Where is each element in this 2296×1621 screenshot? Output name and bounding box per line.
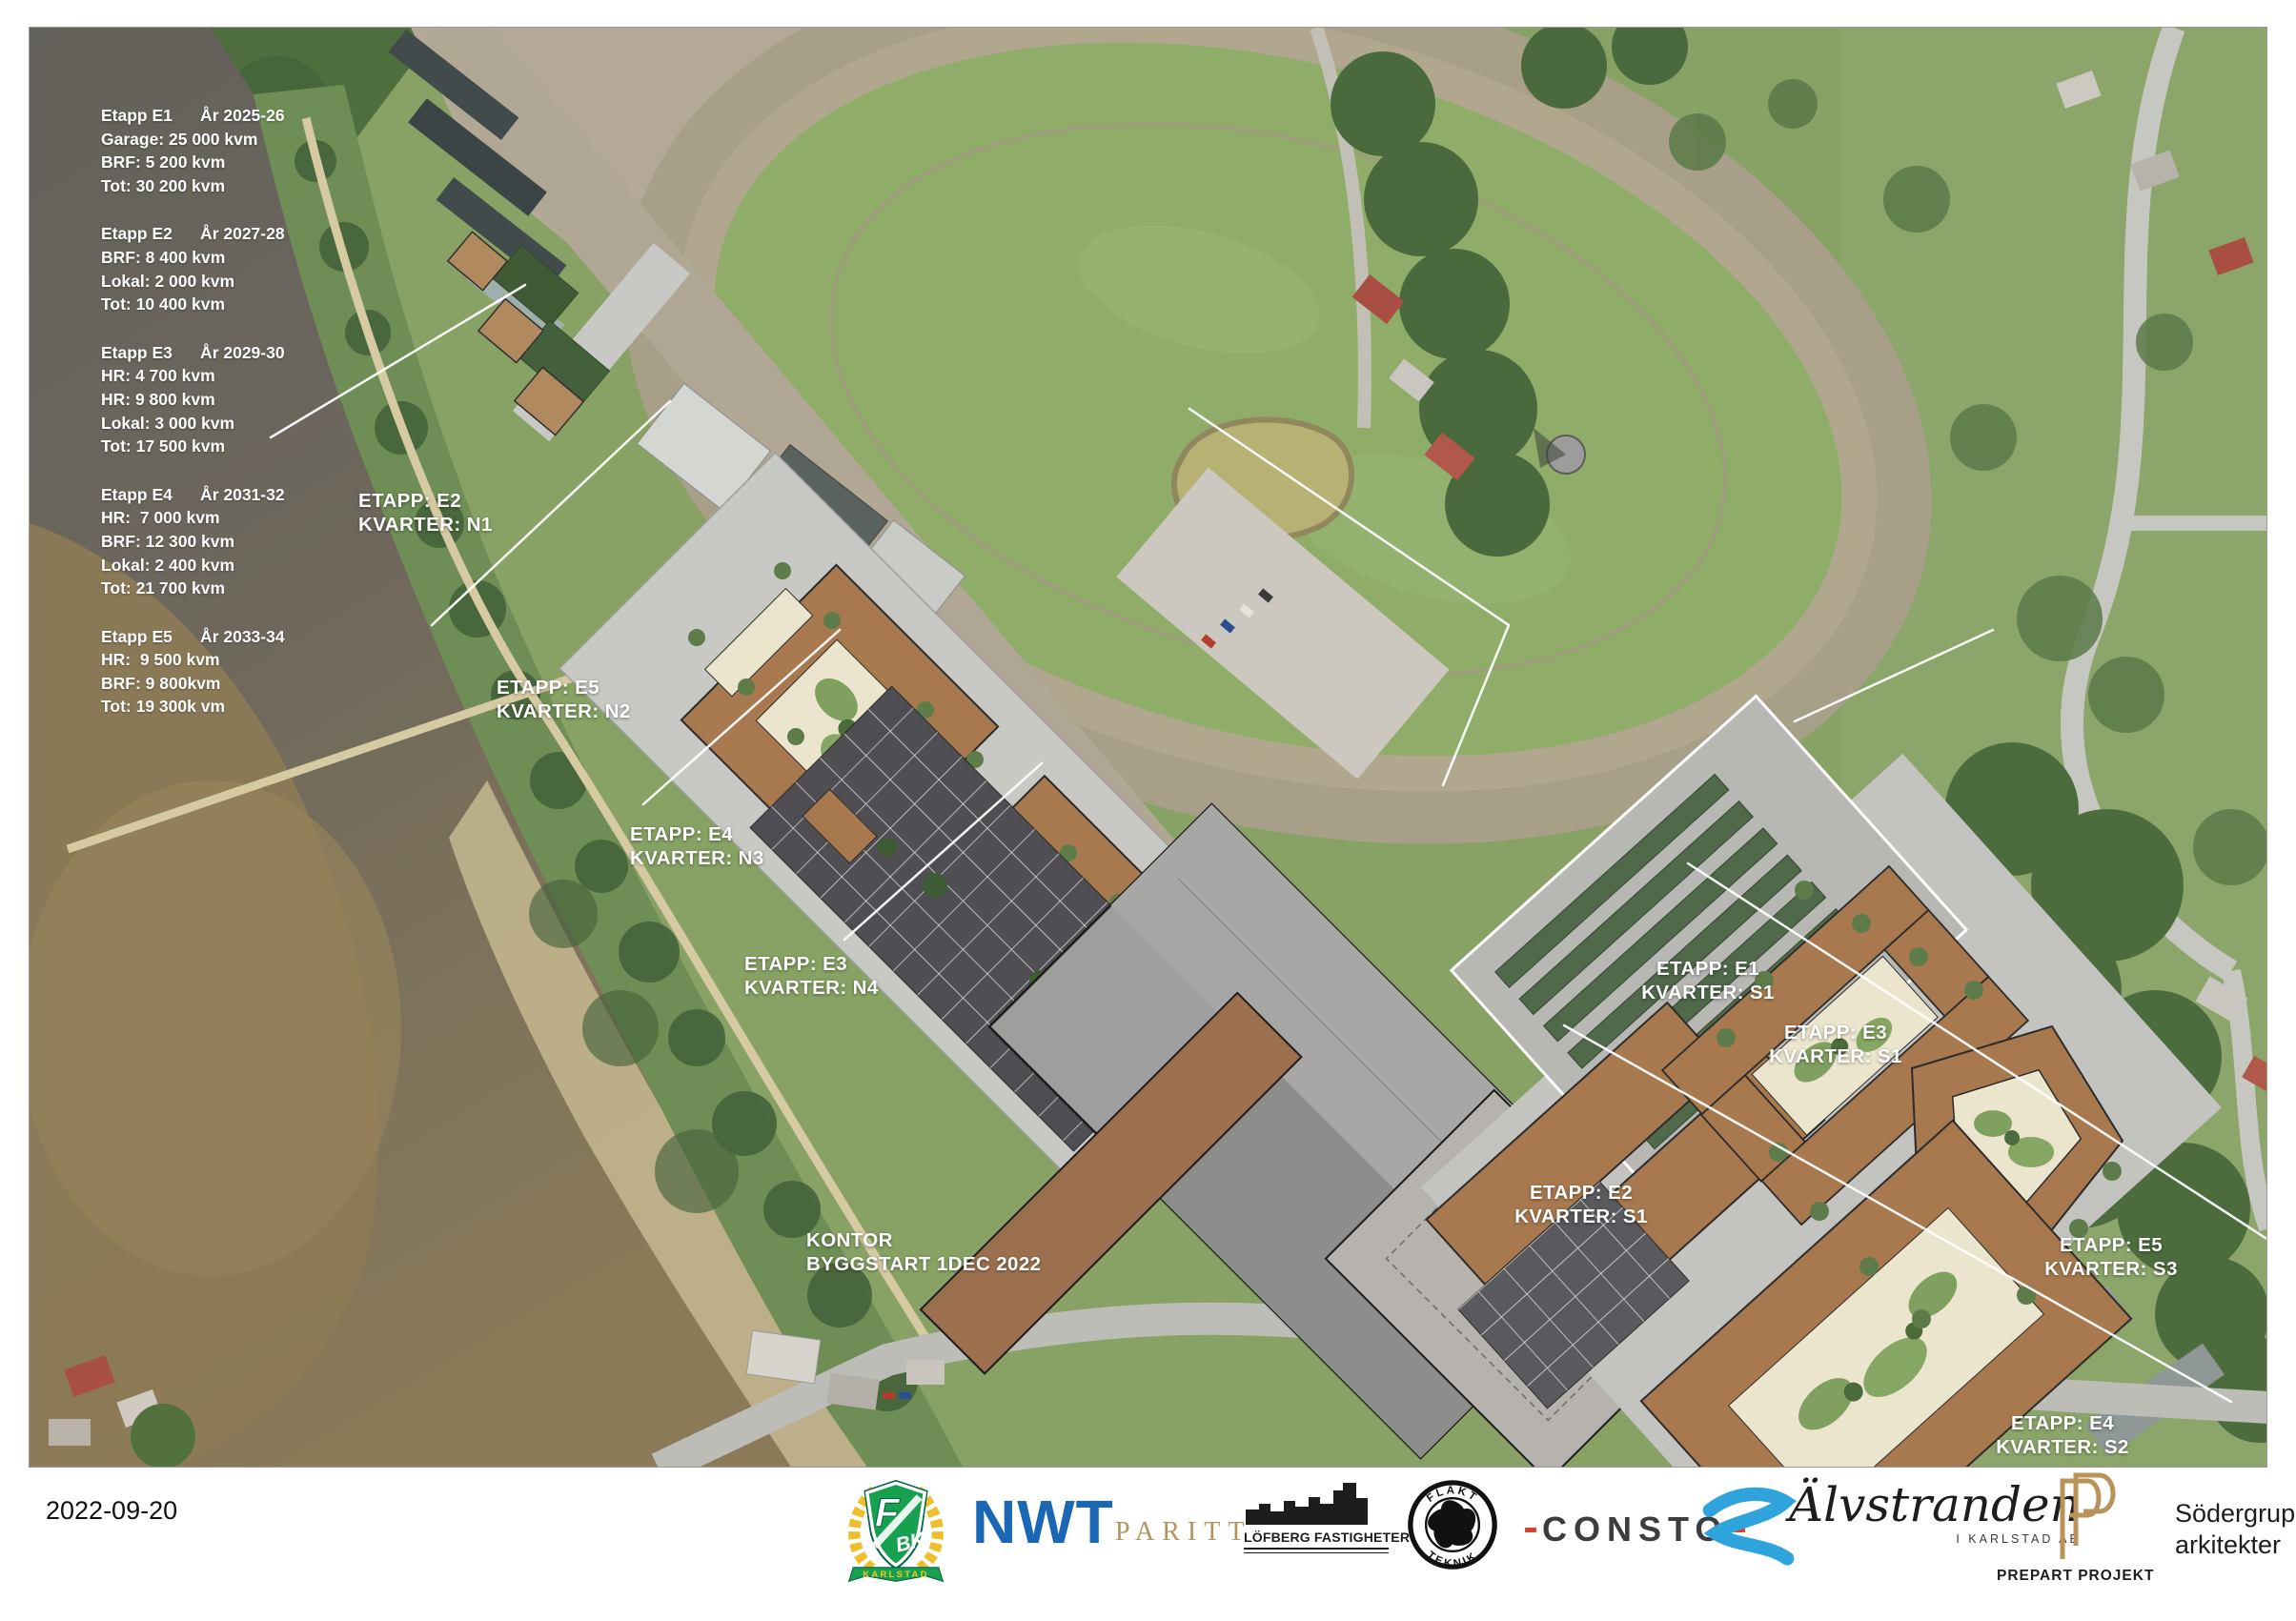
fbk-karlstad-logo: F BK KARLSTAD bbox=[843, 1473, 949, 1591]
svg-text:KARLSTAD: KARLSTAD bbox=[863, 1570, 929, 1580]
flakt-teknik-logo: FLÄKT TEKNIK bbox=[1407, 1479, 1498, 1575]
map-label-kvarter-n3: ETAPP: E4KVARTER: N3 bbox=[630, 775, 764, 870]
fan-icon bbox=[1424, 1498, 1475, 1551]
karlstad-banner: KARLSTAD bbox=[849, 1568, 944, 1582]
aerial-plan-graphic bbox=[30, 28, 2267, 1468]
svg-text:TEKNIK: TEKNIK bbox=[1425, 1550, 1480, 1570]
skyline-icon bbox=[1244, 1481, 1389, 1525]
sodergruppen-logo: Södergruppen arkitekter bbox=[2175, 1498, 2296, 1561]
prepart-projekt-logo: PREPART PROJEKT bbox=[1997, 1471, 2154, 1585]
map-label-kvarter-n4: ETAPP: E3KVARTER: N4 bbox=[744, 904, 879, 1000]
fbk-letter-f: F bbox=[875, 1490, 901, 1536]
map-label-kvarter-s2-e4: ETAPP: E4KVARTER: S2 bbox=[1996, 1364, 2129, 1459]
map-label-kontor: KONTORBYGGSTART 1DEC 2022 bbox=[806, 1181, 1041, 1276]
nwt-logo: NWT bbox=[972, 1491, 1114, 1552]
lofberg-underline bbox=[1244, 1548, 1389, 1553]
map-label-kvarter-s1-e1: ETAPP: E1KVARTER: S1 bbox=[1641, 909, 1775, 1004]
site-plan-map: Etapp E1 År 2025-26Garage: 25 000 kvm BR… bbox=[29, 27, 2267, 1468]
map-label-kvarter-n1: ETAPP: E2KVARTER: N1 bbox=[358, 441, 493, 537]
footer: 2022-09-20 F BK KARLSTAD NWT PARITT bbox=[0, 1468, 2296, 1621]
stage-summary-e1: Etapp E1 År 2025-26Garage: 25 000 kvm BR… bbox=[101, 104, 285, 197]
map-label-kvarter-s3-e5: ETAPP: E5KVARTER: S3 bbox=[2044, 1185, 2178, 1281]
date-label: 2022-09-20 bbox=[46, 1496, 177, 1526]
lofberg-fastigheter-logo: LÖFBERG FASTIGHETER bbox=[1244, 1481, 1410, 1553]
stage-summary-e3: Etapp E3 År 2029-30HR: 4 700 kvm HR: 9 8… bbox=[101, 341, 285, 458]
shield-icon: F BK bbox=[864, 1480, 928, 1570]
map-label-kvarter-n2: ETAPP: E5KVARTER: N2 bbox=[497, 628, 631, 723]
stage-summary-notes: Etapp E1 År 2025-26Garage: 25 000 kvm BR… bbox=[101, 104, 285, 743]
paritt-logo: PARITT bbox=[1115, 1517, 1251, 1548]
map-label-kvarter-s1-e2: ETAPP: E2KVARTER: S1 bbox=[1514, 1133, 1648, 1228]
pp-monogram-icon bbox=[2000, 1471, 2152, 1563]
stage-summary-e4: Etapp E4 År 2031-32HR: 7 000 kvm BRF: 12… bbox=[101, 483, 285, 600]
map-label-kvarter-s1-e3: ETAPP: E3KVARTER: S1 bbox=[1769, 973, 1902, 1068]
stage-summary-e2: Etapp E2 År 2027-28BRF: 8 400 kvm Lokal:… bbox=[101, 222, 285, 315]
consto-dash-icon bbox=[1525, 1528, 1536, 1532]
stage-summary-e5: Etapp E5 År 2033-34HR: 9 500 kvm BRF: 9 … bbox=[101, 625, 285, 719]
